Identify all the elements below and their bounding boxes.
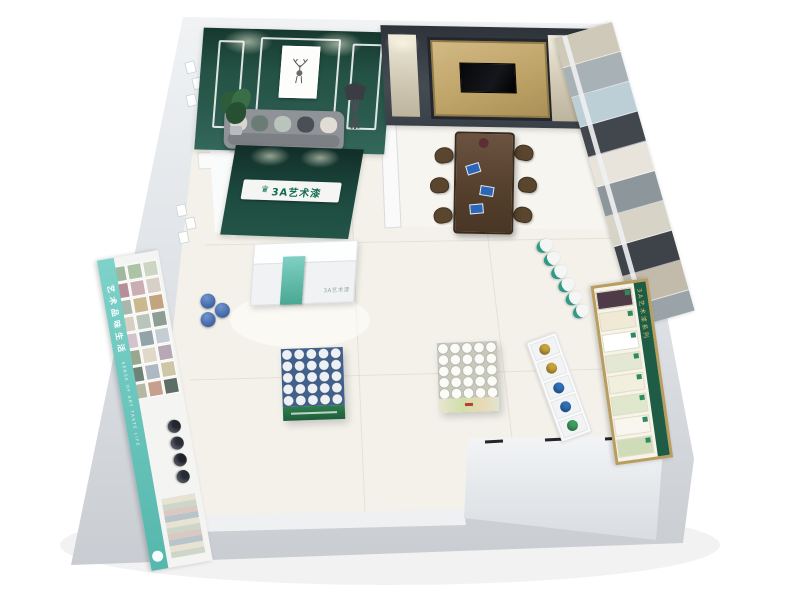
wall-art-frame: · · · xyxy=(278,46,320,99)
paint-swatch xyxy=(133,297,148,313)
counter-brand-label: 3A艺术漆 xyxy=(323,285,350,294)
stand-a-cans xyxy=(281,347,345,407)
paint-swatch xyxy=(149,294,164,310)
chair xyxy=(433,146,454,165)
board-sample-strip xyxy=(616,435,654,458)
paint-swatch xyxy=(146,277,161,293)
board-sample-strip xyxy=(604,351,642,374)
sofa-pillow xyxy=(274,116,291,132)
paint-swatch xyxy=(152,311,167,327)
paint-can xyxy=(170,436,185,451)
paint-swatch xyxy=(164,378,179,394)
tv-screen xyxy=(459,63,517,94)
side-panel xyxy=(388,34,420,117)
showroom-render: · · · xyxy=(0,0,800,600)
deer-artwork-icon: · · · xyxy=(287,57,311,88)
paint-swatch xyxy=(161,361,176,377)
paint-swatch xyxy=(142,347,157,363)
counter-accent-stripe xyxy=(280,256,305,305)
chair xyxy=(429,176,449,194)
sofa-pillow xyxy=(297,116,314,132)
brochure xyxy=(479,185,494,197)
meeting-area xyxy=(419,129,549,239)
svg-text:· · ·: · · · xyxy=(296,83,301,87)
cubby-item xyxy=(552,380,566,394)
bucket-display-stand-b xyxy=(437,341,499,413)
paint-can xyxy=(167,419,182,434)
paint-swatch xyxy=(130,280,145,296)
gold-panel xyxy=(427,37,553,121)
sample-stack xyxy=(161,493,205,558)
chair xyxy=(513,143,535,162)
brochure xyxy=(465,162,481,176)
banner-emblem-icon xyxy=(151,550,164,563)
brand-sign: ♛ 3A艺术漆 xyxy=(240,179,341,202)
table-centerpiece xyxy=(479,138,489,148)
cubby-item xyxy=(559,399,573,413)
chair xyxy=(517,176,538,194)
stand-b-base xyxy=(439,397,499,413)
plant-pot xyxy=(230,126,242,135)
paint-can xyxy=(176,469,191,484)
cubby-item xyxy=(538,342,552,356)
paint-can xyxy=(173,452,188,467)
paint-swatch xyxy=(145,364,160,380)
board-sample-strip xyxy=(613,414,651,437)
board-sample-strip xyxy=(610,393,648,416)
reception-counter: 3A艺术漆 xyxy=(250,240,358,306)
board-sample-strip xyxy=(598,308,636,331)
paint-swatch xyxy=(155,328,170,344)
brand-sign-text: 3A艺术漆 xyxy=(271,183,323,200)
cubby-item xyxy=(545,361,559,375)
sofa-pillow xyxy=(320,117,337,133)
paint-swatch xyxy=(143,261,158,277)
chair xyxy=(512,205,534,225)
board-sample-strip xyxy=(601,330,639,353)
paint-swatch xyxy=(127,263,142,279)
meeting-table xyxy=(453,131,515,234)
potted-plant xyxy=(218,86,254,138)
board-sample-strip xyxy=(607,372,645,395)
bucket-display-stand-a xyxy=(281,347,345,421)
cubby-item xyxy=(566,419,580,433)
stand-b-cans xyxy=(437,341,499,399)
floor-lamp xyxy=(342,82,368,140)
reception-backdrop: ♛ 3A艺术漆 xyxy=(220,145,364,239)
chair xyxy=(432,206,454,225)
board-sample-strip xyxy=(595,287,633,310)
paint-swatch xyxy=(158,344,173,360)
paint-swatch xyxy=(139,330,154,346)
lamp-shade xyxy=(344,82,366,100)
brochure xyxy=(469,203,484,214)
dark-can-row xyxy=(167,419,191,484)
paint-swatch xyxy=(136,314,151,330)
stand-a-base xyxy=(283,405,345,421)
crown-icon: ♛ xyxy=(260,185,270,194)
paint-swatch xyxy=(148,381,163,397)
